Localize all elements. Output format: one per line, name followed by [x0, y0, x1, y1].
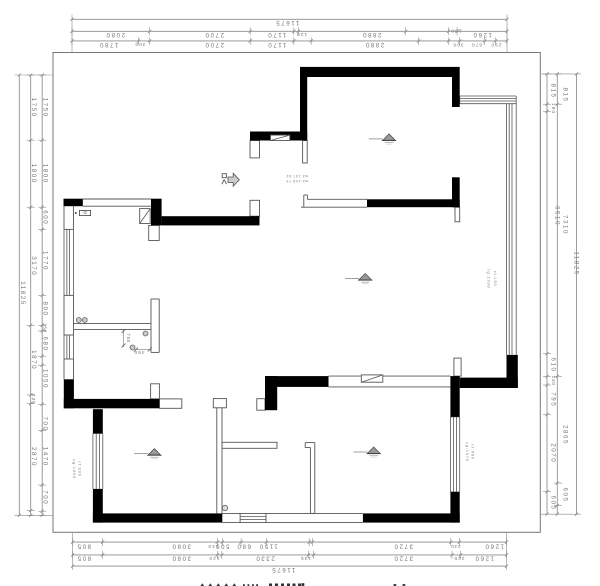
svg-text:680: 680: [42, 337, 49, 352]
svg-text:1260: 1260: [474, 555, 494, 562]
svg-text:2330: 2330: [255, 555, 275, 562]
svg-text:815: 815: [562, 88, 569, 103]
svg-text:1800: 1800: [42, 164, 49, 184]
svg-text:190: 190: [550, 103, 556, 114]
svg-text:2070: 2070: [550, 443, 557, 463]
svg-text:800: 800: [42, 302, 49, 317]
svg-text:300: 300: [452, 41, 463, 47]
svg-text:ct:150: ct:150: [493, 271, 497, 287]
svg-text:230: 230: [451, 544, 461, 549]
svg-text:1050: 1050: [42, 369, 49, 389]
svg-text:135: 135: [300, 555, 311, 561]
svg-text:2870: 2870: [30, 447, 37, 467]
svg-text:120: 120: [208, 555, 219, 561]
svg-text:2880: 2880: [362, 31, 382, 38]
svg-text:300: 300: [134, 41, 145, 47]
svg-text:11825: 11825: [19, 281, 26, 306]
svg-text:140: 140: [207, 543, 218, 549]
svg-text:6510: 6510: [553, 206, 560, 226]
svg-text:11675: 11675: [271, 566, 296, 573]
svg-text:3170: 3170: [30, 256, 37, 276]
svg-text:150: 150: [43, 323, 48, 333]
svg-text:670: 670: [471, 41, 482, 47]
svg-text:2880: 2880: [364, 41, 384, 48]
svg-text:750: 750: [126, 333, 131, 343]
svg-text:1170: 1170: [267, 31, 287, 38]
svg-text:235: 235: [30, 394, 36, 405]
svg-text:1770: 1770: [42, 251, 49, 271]
svg-text:680: 680: [236, 542, 251, 549]
svg-text:3720: 3720: [393, 542, 413, 549]
svg-text:2865: 2865: [562, 425, 569, 445]
svg-text:795: 795: [550, 392, 557, 407]
svg-text:1150: 1150: [258, 542, 278, 549]
svg-text:2700: 2700: [204, 41, 224, 48]
svg-text:3080: 3080: [171, 542, 191, 549]
svg-text:805: 805: [76, 542, 91, 549]
svg-text:cg:1600: cg:1600: [72, 459, 76, 479]
svg-text:cg:2200: cg:2200: [487, 269, 491, 289]
svg-text:1750: 1750: [30, 98, 37, 118]
svg-text:1470: 1470: [42, 447, 49, 467]
svg-text:1170: 1170: [267, 41, 287, 48]
svg-text:815: 815: [550, 84, 557, 99]
svg-text:600: 600: [42, 210, 49, 225]
svg-text:1260: 1260: [472, 31, 492, 38]
svg-text:3080: 3080: [171, 555, 191, 562]
svg-text:3720: 3720: [393, 555, 413, 562]
svg-text:1260: 1260: [484, 542, 504, 549]
svg-text:230: 230: [450, 27, 461, 33]
svg-text:m2:137.62: m2:137.62: [286, 174, 308, 178]
svg-text:2700: 2700: [204, 31, 224, 38]
svg-text:805: 805: [76, 555, 91, 562]
svg-text:ct:880: ct:880: [470, 444, 474, 460]
svg-text:2080: 2080: [105, 31, 125, 38]
svg-text:11825: 11825: [572, 251, 579, 276]
svg-text:1800: 1800: [30, 164, 37, 184]
svg-text:610: 610: [550, 358, 557, 373]
svg-text:605: 605: [562, 488, 569, 503]
svg-text:cg:1570: cg:1570: [465, 442, 469, 462]
svg-text:225: 225: [453, 555, 464, 561]
svg-text:1870: 1870: [30, 350, 37, 370]
svg-text:m2:108.73: m2:108.73: [286, 179, 308, 183]
svg-text:ct:660: ct:660: [78, 461, 82, 477]
svg-text:120: 120: [296, 31, 307, 37]
svg-text:290: 290: [490, 41, 501, 47]
svg-text:230: 230: [551, 376, 556, 386]
svg-text:700: 700: [42, 417, 49, 432]
svg-text:605: 605: [550, 496, 557, 511]
svg-text:450: 450: [133, 349, 144, 355]
svg-text:700: 700: [42, 490, 49, 505]
svg-text:1750: 1750: [42, 98, 49, 118]
svg-text:1780: 1780: [99, 41, 119, 48]
svg-text:7310: 7310: [562, 215, 569, 235]
svg-text:11675: 11675: [275, 19, 300, 26]
